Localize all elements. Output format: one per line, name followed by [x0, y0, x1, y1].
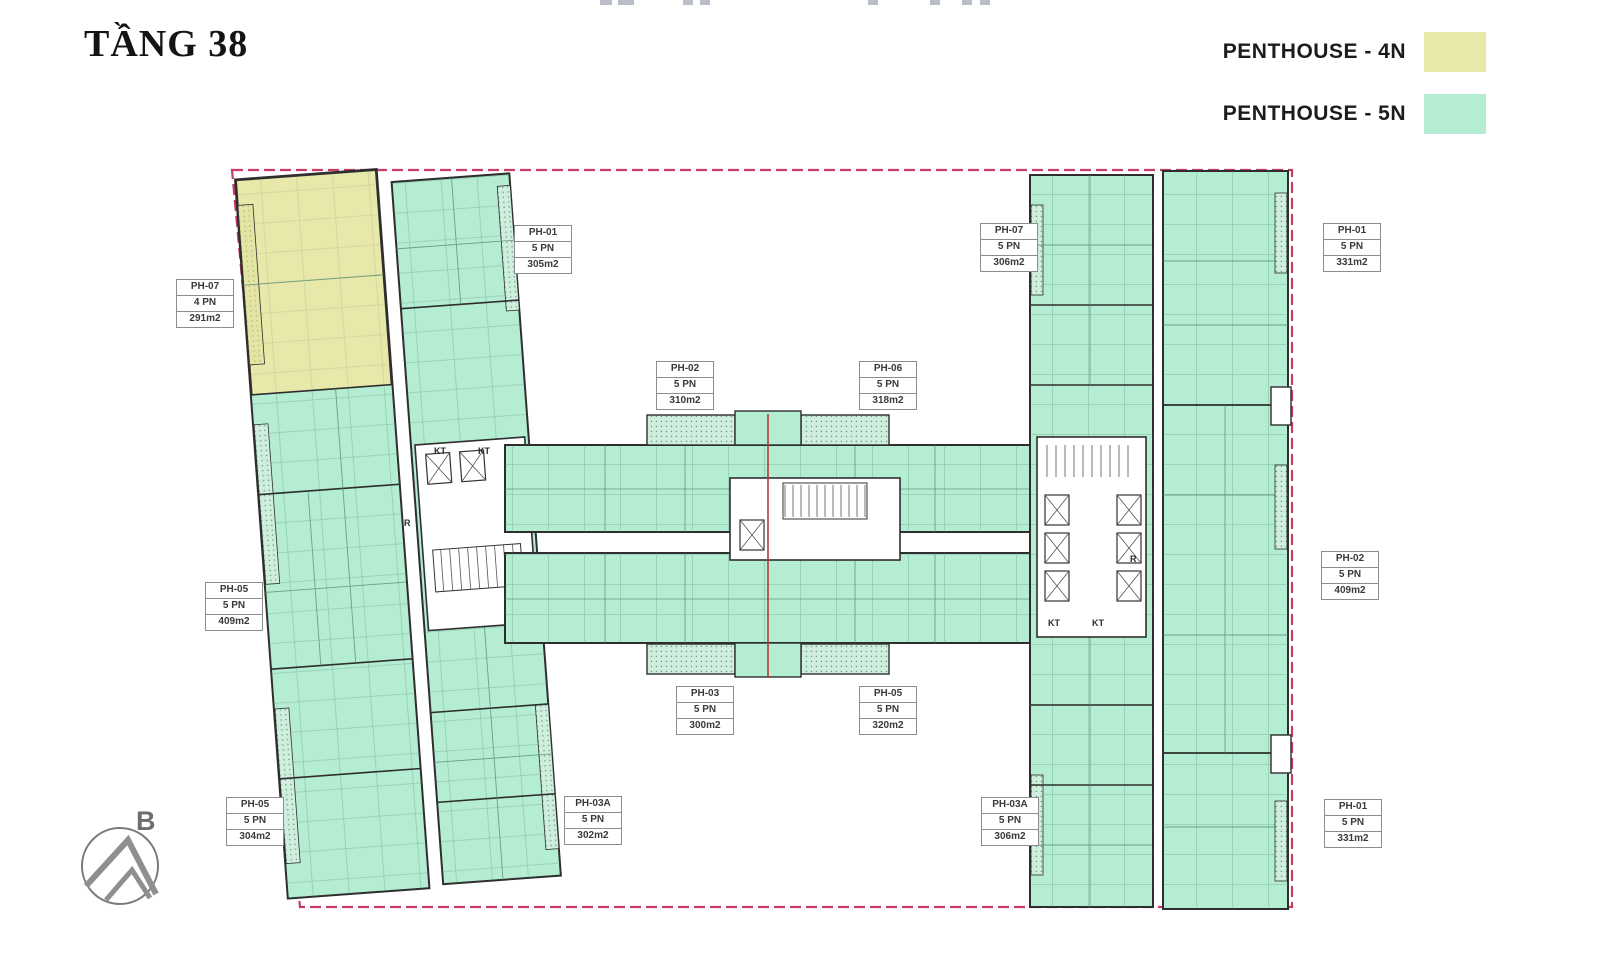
- legend-label: PENTHOUSE - 5N: [1223, 102, 1406, 126]
- unit-name: PH-05: [206, 583, 262, 598]
- balcony-hatch: [647, 644, 735, 674]
- unit-bedrooms: 5 PN: [1324, 239, 1380, 255]
- central-core: [730, 478, 900, 560]
- unit-label-ph01-bottomright: PH-01 5 PN 331m2: [1324, 799, 1382, 848]
- unit-label-ph03-bottom: PH-03 5 PN 300m2: [676, 686, 734, 735]
- right-wing: [1030, 171, 1291, 909]
- compass-north-label: B: [136, 806, 156, 836]
- core-label-kt: KT: [434, 446, 446, 456]
- unit-area: 331m2: [1325, 831, 1381, 847]
- unit-label-ph06-mid: PH-06 5 PN 318m2: [859, 361, 917, 410]
- unit-bedrooms: 5 PN: [860, 377, 916, 393]
- unit-label-ph02-right: PH-02 5 PN 409m2: [1321, 551, 1379, 600]
- unit-area: 320m2: [860, 718, 916, 734]
- cropped-text-fragment: [683, 0, 693, 5]
- unit-name: PH-03A: [982, 798, 1038, 813]
- unit-bedrooms: 4 PN: [177, 295, 233, 311]
- compass: B: [72, 790, 177, 910]
- facade-notch: [1271, 735, 1291, 773]
- core-label-r: R: [404, 518, 411, 528]
- unit-name: PH-03A: [565, 797, 621, 812]
- unit-bedrooms: 5 PN: [206, 598, 262, 614]
- cropped-text-fragment: [600, 0, 612, 5]
- unit-area: 318m2: [860, 393, 916, 409]
- floorplan-page: { "title": "TẦNG 38", "legend": { "items…: [0, 0, 1600, 975]
- legend-swatch-5n: [1424, 94, 1486, 134]
- unit-name: PH-05: [860, 687, 916, 702]
- core-label-kt: KT: [478, 446, 490, 456]
- cropped-text-fragment: [962, 0, 972, 5]
- unit-label-ph07-topright: PH-07 5 PN 306m2: [980, 223, 1038, 272]
- unit-area: 291m2: [177, 311, 233, 327]
- unit-area: 302m2: [565, 828, 621, 844]
- cropped-text-fragment: [930, 0, 940, 5]
- balcony-hatch: [1275, 193, 1287, 273]
- unit-bedrooms: 5 PN: [565, 812, 621, 828]
- page-title: TẦNG 38: [84, 22, 248, 66]
- unit-bedrooms: 5 PN: [981, 239, 1037, 255]
- core-label-kt: KT: [1092, 618, 1104, 628]
- balcony-hatch: [1275, 801, 1287, 881]
- unit-area: 300m2: [677, 718, 733, 734]
- balcony-hatch: [801, 415, 889, 445]
- core-label-kt: KT: [1048, 618, 1060, 628]
- legend-label: PENTHOUSE - 4N: [1223, 40, 1406, 64]
- unit-name: PH-01: [515, 226, 571, 241]
- unit-bedrooms: 5 PN: [677, 702, 733, 718]
- unit-name: PH-02: [1322, 552, 1378, 567]
- unit-name: PH-05: [227, 798, 283, 813]
- cropped-text-fragment: [980, 0, 990, 5]
- unit-bedrooms: 5 PN: [657, 377, 713, 393]
- unit-area: 306m2: [982, 829, 1038, 845]
- floor-plan-drawing: [225, 165, 1335, 910]
- cropped-text-fragment: [700, 0, 710, 5]
- unit-name: PH-07: [981, 224, 1037, 239]
- unit-name: PH-02: [657, 362, 713, 377]
- balcony-hatch: [647, 415, 735, 445]
- unit-label-ph03a-bottomright: PH-03A 5 PN 306m2: [981, 797, 1039, 846]
- unit-label-ph07-4n: PH-07 4 PN 291m2: [176, 279, 234, 328]
- cropped-text-fragment: [618, 0, 634, 5]
- unit-name: PH-01: [1325, 800, 1381, 815]
- unit-area: 305m2: [515, 257, 571, 273]
- unit-label-ph01-topright: PH-01 5 PN 331m2: [1323, 223, 1381, 272]
- unit-bedrooms: 5 PN: [1322, 567, 1378, 583]
- legend-item-penthouse-5n: PENTHOUSE - 5N: [1223, 94, 1486, 134]
- unit-area: 310m2: [657, 393, 713, 409]
- balcony-hatch: [801, 644, 889, 674]
- unit-label-ph05-bottommid: PH-05 5 PN 320m2: [859, 686, 917, 735]
- unit-area: 331m2: [1324, 255, 1380, 271]
- unit-bedrooms: 5 PN: [227, 813, 283, 829]
- unit-area: 409m2: [1322, 583, 1378, 599]
- unit-name: PH-01: [1324, 224, 1380, 239]
- cropped-text-fragment: [868, 0, 878, 5]
- unit-bedrooms: 5 PN: [515, 241, 571, 257]
- unit-label-ph01-topleft: PH-01 5 PN 305m2: [514, 225, 572, 274]
- unit-bedrooms: 5 PN: [982, 813, 1038, 829]
- unit-name: PH-03: [677, 687, 733, 702]
- balcony-hatch: [1275, 465, 1287, 549]
- unit-bedrooms: 5 PN: [1325, 815, 1381, 831]
- legend-swatch-4n: [1424, 32, 1486, 72]
- facade-notch: [1271, 387, 1291, 425]
- unit-area: 304m2: [227, 829, 283, 845]
- unit-label-ph05-bottomleft: PH-05 5 PN 304m2: [226, 797, 284, 846]
- unit-label-ph03a-bottomleft: PH-03A 5 PN 302m2: [564, 796, 622, 845]
- unit-name: PH-06: [860, 362, 916, 377]
- unit-area: 306m2: [981, 255, 1037, 271]
- core-label-r: R: [1130, 554, 1137, 564]
- unit-label-ph05-left: PH-05 5 PN 409m2: [205, 582, 263, 631]
- unit-label-ph02-mid: PH-02 5 PN 310m2: [656, 361, 714, 410]
- unit-area: 409m2: [206, 614, 262, 630]
- middle-section: [505, 411, 1031, 678]
- unit-name: PH-07: [177, 280, 233, 295]
- right-wing-core: [1037, 437, 1146, 637]
- unit-bedrooms: 5 PN: [860, 702, 916, 718]
- legend-item-penthouse-4n: PENTHOUSE - 4N: [1223, 32, 1486, 72]
